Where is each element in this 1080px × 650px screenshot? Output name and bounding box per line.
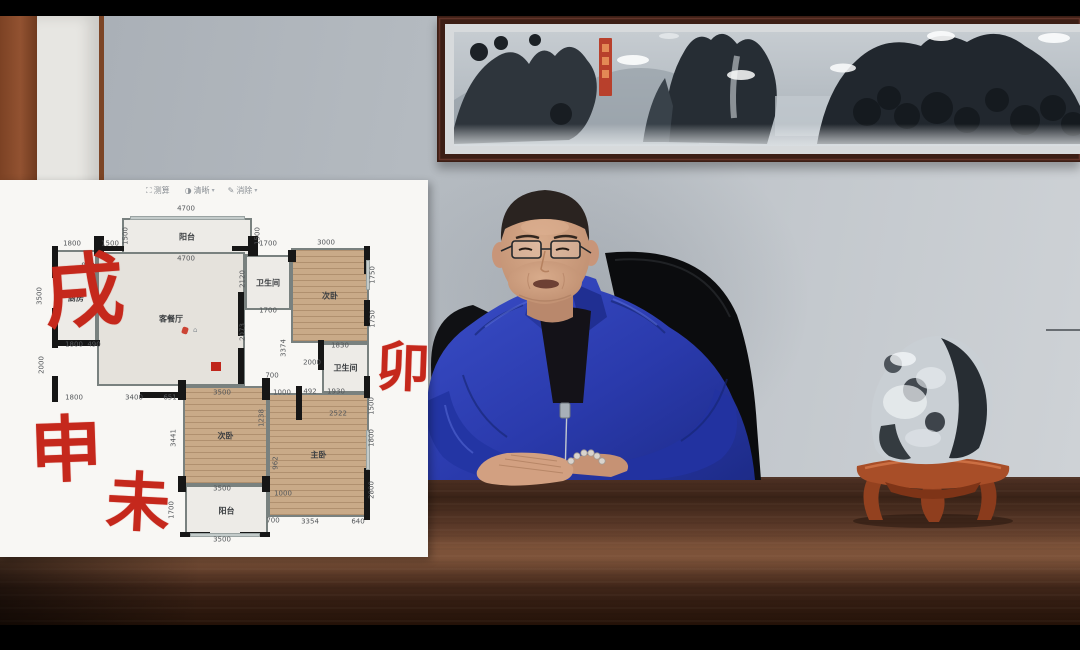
letterbox-top-bar (0, 0, 1080, 16)
dimension-label: 2000 (39, 356, 46, 374)
wall-segment (52, 376, 58, 402)
wall-segment (364, 376, 370, 398)
house-icon: ⌂ (193, 326, 197, 334)
dimension-label: 1238 (259, 409, 266, 427)
dimension-label: 1000 (274, 491, 292, 498)
dimension-label: 2120 (240, 270, 247, 288)
dimension-label: 3500 (213, 390, 231, 397)
room-label-bath-1: 卫生间 (256, 277, 280, 288)
dimension-label: 1930 (327, 389, 345, 396)
fengshui-annotation: 未 (104, 472, 171, 536)
dimension-label: 1700 (259, 308, 277, 315)
dimension-label: 1750 (370, 310, 377, 328)
floorplan: 阳台厨房客餐厅卫生间次卧卫生间步入式衣柜次卧主卧阳台 4700150015004… (0, 180, 428, 557)
zipper-pull (560, 403, 570, 418)
painting-art (437, 16, 1080, 162)
letterbox-bottom-bar (0, 625, 1080, 650)
calligraphy-seal (599, 38, 612, 96)
wall-segment (238, 348, 244, 384)
dimension-label: 1500 (123, 227, 130, 245)
dimension-label: 4700 (177, 256, 195, 263)
wall-segment (262, 476, 270, 492)
room-label-bath-2: 卫生间 (334, 363, 358, 374)
video-frame: ⛶测算◑清晰▾✎消除▾ 阳台厨房客餐厅卫生间次卧卫生间步入式衣柜次卧主卧阳台 4… (0, 0, 1080, 650)
wall-segment (232, 246, 252, 251)
dimension-label: 1000 (273, 390, 291, 397)
dimension-label: 3400 (125, 395, 143, 402)
room-label-bedroom-2: 次卧 (322, 290, 338, 301)
wall-segment (262, 378, 270, 400)
dimension-label: 3500 (213, 537, 231, 544)
dimension-label: 962 (273, 456, 280, 469)
room-label-master-bedroom: 主卧 (311, 450, 327, 461)
dimension-label: 3500 (37, 287, 44, 305)
floorplan-overlay: ⛶测算◑清晰▾✎消除▾ 阳台厨房客餐厅卫生间次卧卫生间步入式衣柜次卧主卧阳台 4… (0, 180, 428, 557)
person (415, 165, 775, 510)
dimension-label: 2522 (329, 411, 347, 418)
dimension-label: 1750 (370, 266, 377, 284)
dimension-label: 1800 (65, 395, 83, 402)
wall-seam (1046, 329, 1080, 331)
dimension-label: 3500 (213, 486, 231, 493)
red-square-marker (211, 362, 221, 371)
dimension-label: 1830 (331, 343, 349, 350)
dimension-label: 3441 (171, 429, 178, 447)
room-label-living-dining: 客餐厅 (159, 314, 183, 325)
landscape-painting (437, 16, 1080, 162)
wooden-stand (857, 457, 1009, 522)
stone (871, 336, 992, 464)
window-segment (130, 216, 245, 220)
wall-segment (178, 476, 186, 492)
dimension-label: 700 (265, 373, 278, 380)
dimension-label: 1500 (369, 397, 376, 415)
dimension-label: 640 (351, 519, 364, 526)
dimension-label: 492 (303, 389, 316, 396)
fengshui-annotation: 卯 (375, 341, 428, 394)
room-label-balcony-top: 阳台 (179, 232, 195, 243)
dimension-label: 3374 (281, 339, 288, 357)
dimension-label: 2073 (240, 323, 247, 341)
wall-segment (288, 250, 296, 262)
dimension-label: 700 (266, 518, 279, 525)
wall-segment (296, 386, 302, 420)
dimension-label: 3354 (301, 519, 319, 526)
fengshui-annotation: 申 (29, 415, 103, 486)
dimension-label: 1700 (259, 241, 277, 248)
dimension-label: 2000 (303, 360, 321, 367)
dimension-label: 490 (87, 342, 100, 349)
dimension-label: 3000 (317, 240, 335, 247)
room-label-balcony-bottom: 阳台 (219, 506, 235, 517)
dimension-label: 2800 (369, 481, 376, 499)
room-label-bedroom-3: 次卧 (218, 430, 234, 441)
mouth (533, 280, 559, 289)
dimension-label: 1800 (65, 342, 83, 349)
dimension-label: 4700 (177, 206, 195, 213)
dimension-label: 651 (163, 395, 176, 402)
scholar-stone (845, 330, 1015, 530)
fengshui-annotation: 戌 (41, 251, 126, 332)
dimension-label: 1800 (369, 429, 376, 447)
